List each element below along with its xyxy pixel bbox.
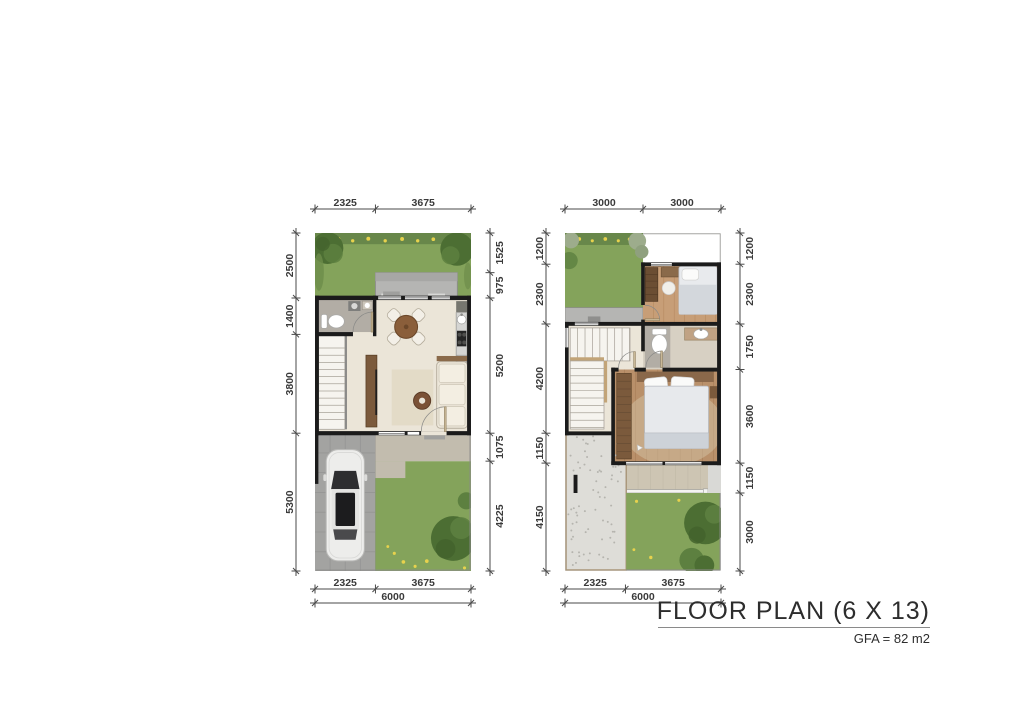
wardrobe [645,268,657,302]
dim-label: 2325 [334,197,358,209]
dim-label: 2325 [334,577,358,589]
back-terrace [375,273,457,298]
dim-label: 1075 [494,435,506,459]
dim-label: 2325 [584,577,608,589]
tree [440,233,471,266]
dim-label: 3675 [412,577,436,589]
vanity [685,328,718,340]
dim-label: 2300 [534,282,546,306]
dim-label: 4200 [534,367,546,391]
dim-label: 3675 [662,577,686,589]
floor-cushion [662,282,675,295]
ground-floor-plan [315,233,471,571]
console-table [437,356,468,361]
dim-label: 6000 [381,591,405,603]
side-table [710,386,718,398]
dim-label: 1200 [744,237,756,261]
wardrobe [617,373,632,459]
upper-floor-plan [565,233,721,571]
bathroom [319,300,373,332]
gfa-label: GFA = 82 m2 [657,631,930,646]
dim-label: 5200 [494,354,506,378]
balcony [613,463,708,493]
dim-label: 2300 [744,282,756,306]
dim-label: 3600 [744,404,756,428]
single-bed [679,266,717,314]
sink [457,315,466,324]
upper-garden [626,493,721,571]
tv-cabinet [366,355,377,427]
dim-label: 1750 [744,335,756,359]
dim-label: 3000 [670,197,694,209]
stove [457,331,466,347]
sofa [437,362,468,429]
dim-label: 2500 [284,254,296,278]
car [323,450,367,561]
roof-garden [565,233,648,324]
dim-label: 975 [494,276,506,294]
dim-label: 4225 [494,504,506,528]
dim-label: 1150 [534,437,546,460]
floor-plan-sheet: 2325367523253675600025001400380053001525… [0,0,1024,723]
dim-label: 3800 [284,372,296,396]
dim-label: 1400 [284,304,296,328]
dim-label: 3675 [412,197,436,209]
path [375,435,471,461]
dim-label: 1200 [534,237,546,261]
title-block: FLOOR PLAN (6 X 13) GFA = 82 m2 [657,597,930,646]
double-bed [644,376,709,448]
dim-label: 5300 [284,490,296,514]
dim-label: 6000 [631,591,655,603]
dim-label: 1525 [494,241,506,265]
dim-label: 3000 [592,197,616,209]
toilet [652,329,668,354]
toilet [321,314,344,328]
title-rule [658,627,930,628]
dim-label: 1150 [744,467,756,490]
dim-label: 4150 [534,505,546,529]
dim-label: 3000 [744,520,756,544]
page-title: FLOOR PLAN (6 X 13) [657,597,930,626]
staircase [319,334,347,429]
